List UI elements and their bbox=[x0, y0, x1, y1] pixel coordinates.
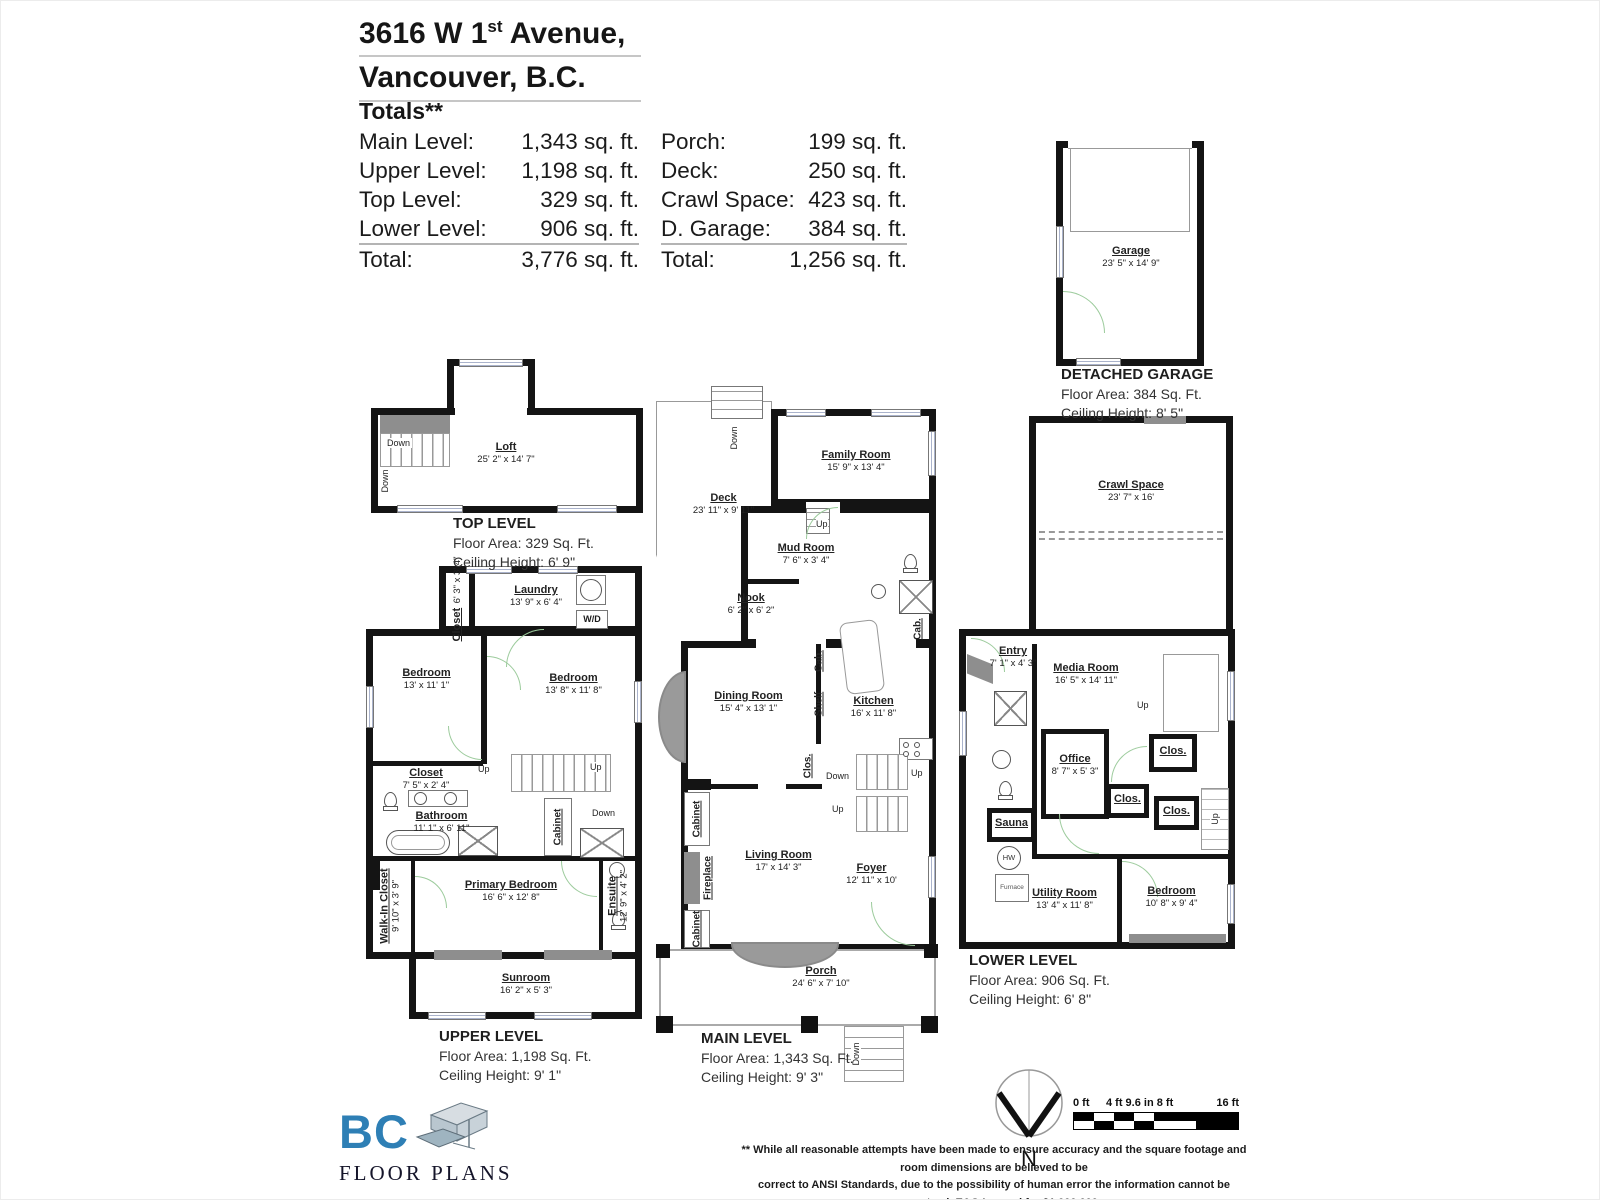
window-seat bbox=[434, 950, 502, 960]
window bbox=[786, 409, 826, 417]
stove-burner-icon bbox=[903, 751, 909, 757]
garage-door-swing bbox=[1070, 148, 1190, 232]
wall bbox=[741, 506, 936, 646]
stair-direction-label: Down bbox=[592, 808, 615, 818]
wall bbox=[786, 784, 822, 789]
room-label-garage: Garage 23' 5" x 14' 9" bbox=[1081, 244, 1181, 271]
floor-plan-detached-garage: Garage 23' 5" x 14' 9" bbox=[1056, 141, 1204, 366]
room-label-living-room: Living Room 17' x 14' 3" bbox=[721, 848, 836, 875]
room-label-deck: Deck 23' 11" x 9' 11" bbox=[676, 491, 771, 518]
disclaimer: ** While all reasonable attempts have be… bbox=[739, 1142, 1249, 1200]
room-label-bedroom-lower: Bedroom 10' 8" x 9' 4" bbox=[1124, 884, 1219, 911]
totals-row: Upper Level:1,198 sq. ft. bbox=[359, 156, 639, 185]
window bbox=[1227, 671, 1235, 721]
closet-label: Clos. bbox=[1107, 792, 1148, 806]
toilet-icon bbox=[904, 554, 918, 573]
hot-water-tank-icon: HW bbox=[997, 846, 1021, 870]
stair-direction-label: Up bbox=[816, 519, 828, 529]
stair-direction-label: Down bbox=[380, 469, 390, 492]
sink-icon bbox=[444, 792, 457, 805]
caption-detached-garage: DETACHED GARAGE Floor Area: 384 Sq. Ft. … bbox=[1061, 365, 1213, 423]
room-label-kitchen: Kitchen 16' x 11' 8" bbox=[831, 694, 916, 721]
address-line-1: 3616 W 1st Avenue, bbox=[359, 13, 641, 57]
fireplace-hearth bbox=[684, 852, 700, 904]
caption-lower-level: LOWER LEVEL Floor Area: 906 Sq. Ft. Ceil… bbox=[969, 951, 1110, 1009]
north-arrow-icon bbox=[994, 1067, 1064, 1145]
room-label-media-room: Media Room 16' 5" x 14' 11" bbox=[1021, 661, 1151, 688]
room-label-closet-mid: Closet 7' 5" x 2' 4" bbox=[381, 766, 471, 793]
room-label-porch: Porch 24' 6" x 7' 10" bbox=[761, 964, 881, 991]
shelf-label: Shelf bbox=[814, 692, 825, 716]
caption-upper-level: UPPER LEVEL Floor Area: 1,198 Sq. Ft. Ce… bbox=[439, 1027, 592, 1085]
totals-row-total: Total:3,776 sq. ft. bbox=[359, 245, 639, 274]
caption-main-level: MAIN LEVEL Floor Area: 1,343 Sq. Ft. Cei… bbox=[701, 1029, 854, 1087]
closet-icon bbox=[994, 691, 1027, 726]
stair-direction-label: Up bbox=[588, 762, 604, 772]
window bbox=[1056, 226, 1064, 278]
totals-row: Deck:250 sq. ft. bbox=[661, 156, 907, 185]
window-seat bbox=[1129, 934, 1226, 943]
window bbox=[366, 686, 374, 728]
window bbox=[459, 359, 523, 367]
crawl-space-divider bbox=[1039, 538, 1223, 540]
stove-burner-icon bbox=[914, 751, 920, 757]
sauna-label: Sauna bbox=[988, 816, 1035, 830]
washer-dryer-box: W/D bbox=[576, 610, 608, 629]
disclaimer-line-2: correct to ANSI Standards, due to the po… bbox=[739, 1177, 1249, 1200]
wall bbox=[469, 573, 475, 629]
room-label-foyer: Foyer 12' 11" x 10' bbox=[824, 861, 919, 888]
room-label-bedroom-1: Bedroom 13' x 11' 1" bbox=[374, 666, 479, 693]
window bbox=[428, 1012, 486, 1020]
porch-post bbox=[921, 1016, 938, 1033]
window bbox=[557, 505, 617, 513]
window bbox=[1227, 884, 1235, 924]
staircase bbox=[856, 754, 908, 790]
property-address: 3616 W 1st Avenue, Vancouver, B.C. bbox=[359, 13, 641, 102]
disclaimer-line-1: ** While all reasonable attempts have be… bbox=[739, 1142, 1249, 1177]
staircase bbox=[511, 754, 611, 792]
wall bbox=[681, 779, 711, 790]
totals-row: D. Garage:384 sq. ft. bbox=[661, 214, 907, 245]
scale-bar: 0 ft 4 ft 9.6 in 8 ft 16 ft bbox=[1073, 1097, 1239, 1130]
stair-direction-label: Up bbox=[911, 768, 923, 778]
logo-bc-text: BC bbox=[339, 1108, 409, 1155]
staircase bbox=[856, 796, 908, 832]
window bbox=[871, 409, 921, 417]
staircase bbox=[711, 386, 763, 419]
stair-direction-label: Down bbox=[729, 426, 739, 449]
linen-closet-icon bbox=[899, 580, 933, 614]
toilet-icon bbox=[999, 781, 1013, 800]
cabinet-label: Cabinet bbox=[692, 911, 703, 948]
cabinet-label: Cab. bbox=[814, 650, 825, 672]
closet-label: Clos. bbox=[803, 754, 814, 778]
totals-row: Top Level:329 sq. ft. bbox=[359, 185, 639, 214]
stair-direction-label: Up bbox=[832, 804, 844, 814]
floor-plan-main-level: Down Deck 23' 11" x 9' 11" Family Room 1… bbox=[656, 386, 941, 1101]
stair-direction-label: Up bbox=[1210, 813, 1220, 825]
totals-row: Porch:199 sq. ft. bbox=[661, 127, 907, 156]
sink-icon bbox=[992, 750, 1011, 769]
logo-house-sketch-icon bbox=[413, 1097, 491, 1155]
stove-burner-icon bbox=[903, 742, 909, 748]
room-label-sunroom: Sunroom 16' 2" x 5' 3" bbox=[466, 971, 586, 998]
window bbox=[534, 1012, 592, 1020]
wall bbox=[1029, 416, 1233, 636]
room-label-bathroom: Bathroom 11' 1" x 6' 11" bbox=[394, 809, 489, 836]
caption-top-level: TOP LEVEL Floor Area: 329 Sq. Ft. Ceilin… bbox=[453, 514, 594, 572]
closet-label: Clos. bbox=[1155, 804, 1198, 818]
floor-plan-page: 3616 W 1st Avenue, Vancouver, B.C. Total… bbox=[0, 0, 1600, 1200]
room-label-family-room: Family Room 15' 9" x 13' 4" bbox=[796, 448, 916, 475]
window-seat bbox=[544, 950, 612, 960]
cabinet-label: Cab. bbox=[913, 618, 924, 640]
stove-burner-icon bbox=[914, 742, 920, 748]
room-label-loft: Loft 25' 2" x 14' 7" bbox=[451, 440, 561, 467]
low-ceiling-area bbox=[380, 415, 450, 433]
address-line-2: Vancouver, B.C. bbox=[359, 57, 641, 101]
window bbox=[928, 431, 936, 476]
stair-direction-label: Up bbox=[1137, 700, 1149, 710]
porch-post bbox=[924, 944, 938, 958]
totals-row: Main Level:1,343 sq. ft. bbox=[359, 127, 639, 156]
stair-direction-label: Down bbox=[826, 771, 849, 781]
totals-row-total: Total:1,256 sq. ft. bbox=[661, 245, 907, 274]
wall bbox=[599, 861, 603, 954]
logo-floor-plans-text: FLOOR PLANS bbox=[339, 1161, 513, 1186]
porch-post bbox=[656, 944, 670, 958]
room-label-office: Office 8' 7" x 5' 3" bbox=[1044, 752, 1106, 779]
window bbox=[634, 681, 642, 723]
shower-icon bbox=[580, 828, 624, 858]
wall bbox=[741, 579, 799, 584]
totals-row: Lower Level:906 sq. ft. bbox=[359, 214, 639, 245]
cabinet-label: Cabinet bbox=[692, 801, 703, 838]
window bbox=[397, 505, 463, 513]
sink-icon bbox=[871, 584, 886, 599]
scale-label-mid: 4 ft 9.6 in 8 ft bbox=[1106, 1097, 1173, 1109]
window bbox=[928, 856, 936, 898]
window bbox=[959, 711, 967, 756]
bc-floor-plans-logo: BC FLOOR PLANS bbox=[339, 1097, 513, 1186]
stair-direction-label: Up bbox=[478, 764, 490, 774]
room-label-utility-room: Utility Room 13' 4" x 11' 8" bbox=[1017, 886, 1112, 913]
room-label-laundry: Laundry 13' 9" x 6' 4" bbox=[486, 583, 586, 610]
crawl-space-divider bbox=[1039, 531, 1223, 533]
room-label-nook: Nook 6' 2" x 6' 2" bbox=[711, 591, 791, 618]
floor-plan-top-level: Down Down Loft 25' 2" x 14' 7" bbox=[371, 359, 643, 517]
totals-row: Crawl Space:423 sq. ft. bbox=[661, 185, 907, 214]
cabinet-label: Cabinet bbox=[553, 809, 564, 846]
totals-heading: Totals** bbox=[359, 98, 443, 125]
room-label-mud-room: Mud Room 7' 6" x 3' 4" bbox=[761, 541, 851, 568]
floor-plan-lower-level: Crawl Space 23' 7" x 16' Entry 7' 1" x 4… bbox=[959, 416, 1235, 951]
room-label-bedroom-2: Bedroom 13' 8" x 11' 8" bbox=[516, 671, 631, 698]
scale-label-16: 16 ft bbox=[1216, 1097, 1239, 1109]
stair-direction-label: Down bbox=[385, 438, 412, 448]
room-label-primary-bedroom: Primary Bedroom 16' 6" x 12' 8" bbox=[426, 878, 596, 905]
porch-post bbox=[656, 1016, 673, 1033]
scale-label-0: 0 ft bbox=[1073, 1097, 1090, 1109]
closet-label: Clos. bbox=[1151, 744, 1195, 758]
totals-left-column: Main Level:1,343 sq. ft. Upper Level:1,1… bbox=[359, 127, 639, 274]
fireplace-label: Fireplace bbox=[703, 856, 714, 900]
scale-bar-graphic bbox=[1073, 1112, 1239, 1130]
wall bbox=[1032, 854, 1232, 859]
floor-plan-upper-level: Closet 6' 3" x 3' 4" Laundry 13' 9" x 6'… bbox=[366, 566, 642, 1022]
totals-right-column: Porch:199 sq. ft. Deck:250 sq. ft. Crawl… bbox=[661, 127, 907, 274]
room-label-crawl-space: Crawl Space 23' 7" x 16' bbox=[1071, 478, 1191, 505]
sink-icon bbox=[414, 792, 427, 805]
room-label-dining-room: Dining Room 15' 4" x 13' 1" bbox=[691, 689, 806, 716]
bay-window bbox=[658, 671, 686, 763]
staircase bbox=[1163, 654, 1219, 732]
